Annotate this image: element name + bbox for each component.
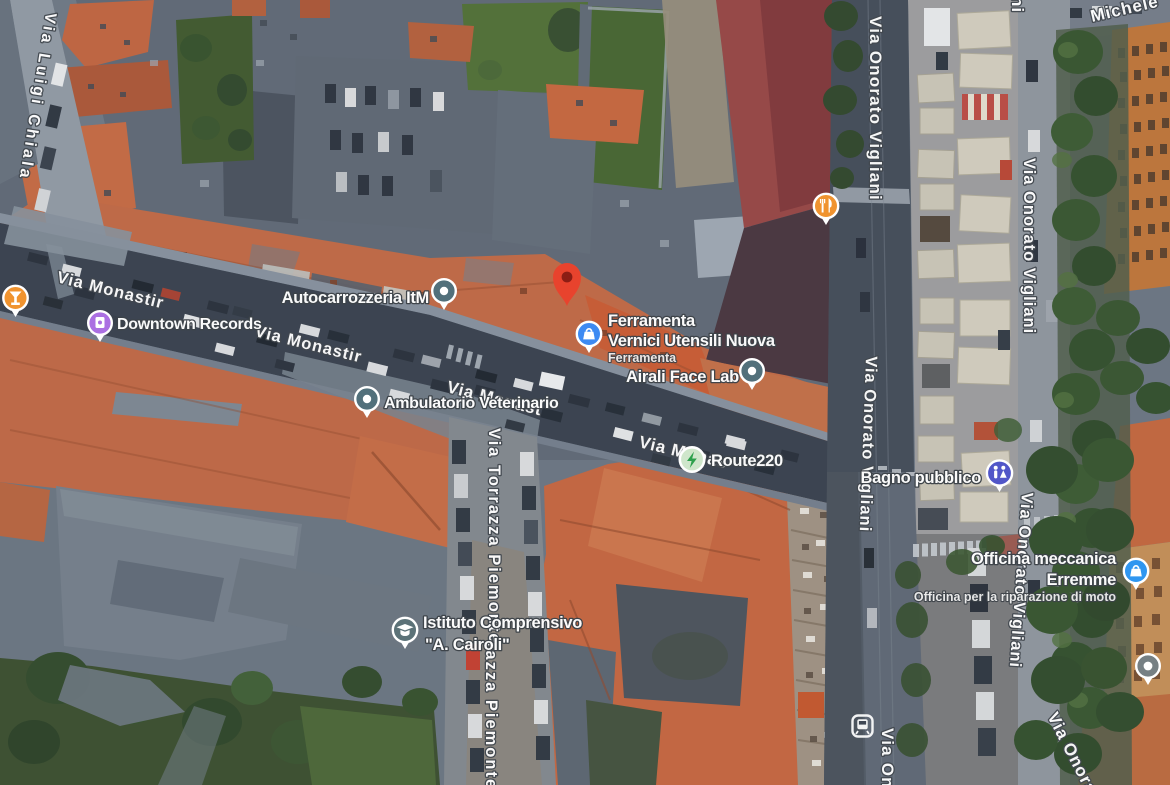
svg-text:Vernici Utensili Nuova: Vernici Utensili Nuova [608, 332, 776, 350]
svg-text:Autocarrozzeria ItM: Autocarrozzeria ItM [282, 289, 429, 307]
svg-text:Officina meccanica: Officina meccanica [971, 550, 1117, 568]
svg-text:Officina per la riparazione di: Officina per la riparazione di moto [914, 590, 1116, 604]
svg-text:Airali Face Lab: Airali Face Lab [626, 368, 739, 386]
svg-text:Via Onorato Vigliani: Via Onorato Vigliani [866, 16, 885, 201]
svg-text:Downtown Records: Downtown Records [117, 316, 262, 333]
svg-text:Ferramenta: Ferramenta [608, 312, 696, 330]
svg-text:Via Onorato Vigliani: Via Onorato Vigliani [1020, 158, 1038, 334]
svg-text:Erremme: Erremme [1047, 571, 1117, 589]
svg-text:Route220: Route220 [711, 452, 783, 470]
svg-text:razza Piemonte: razza Piemonte [482, 642, 500, 785]
svg-text:"A. Cairoli": "A. Cairoli" [425, 636, 509, 654]
svg-text:Via Torrazza Piemonte: Via Torrazza Piemonte [485, 428, 503, 645]
svg-text:Istituto Comprensivo: Istituto Comprensivo [423, 614, 582, 632]
svg-text:ni: ni [1008, 0, 1027, 13]
svg-text:Via Onor: Via Onor [878, 728, 897, 785]
svg-text:Ferramenta: Ferramenta [608, 351, 677, 365]
svg-text:Bagno pubblico: Bagno pubblico [861, 469, 982, 487]
svg-text:Ambulatorio Veterinario: Ambulatorio Veterinario [384, 395, 559, 412]
